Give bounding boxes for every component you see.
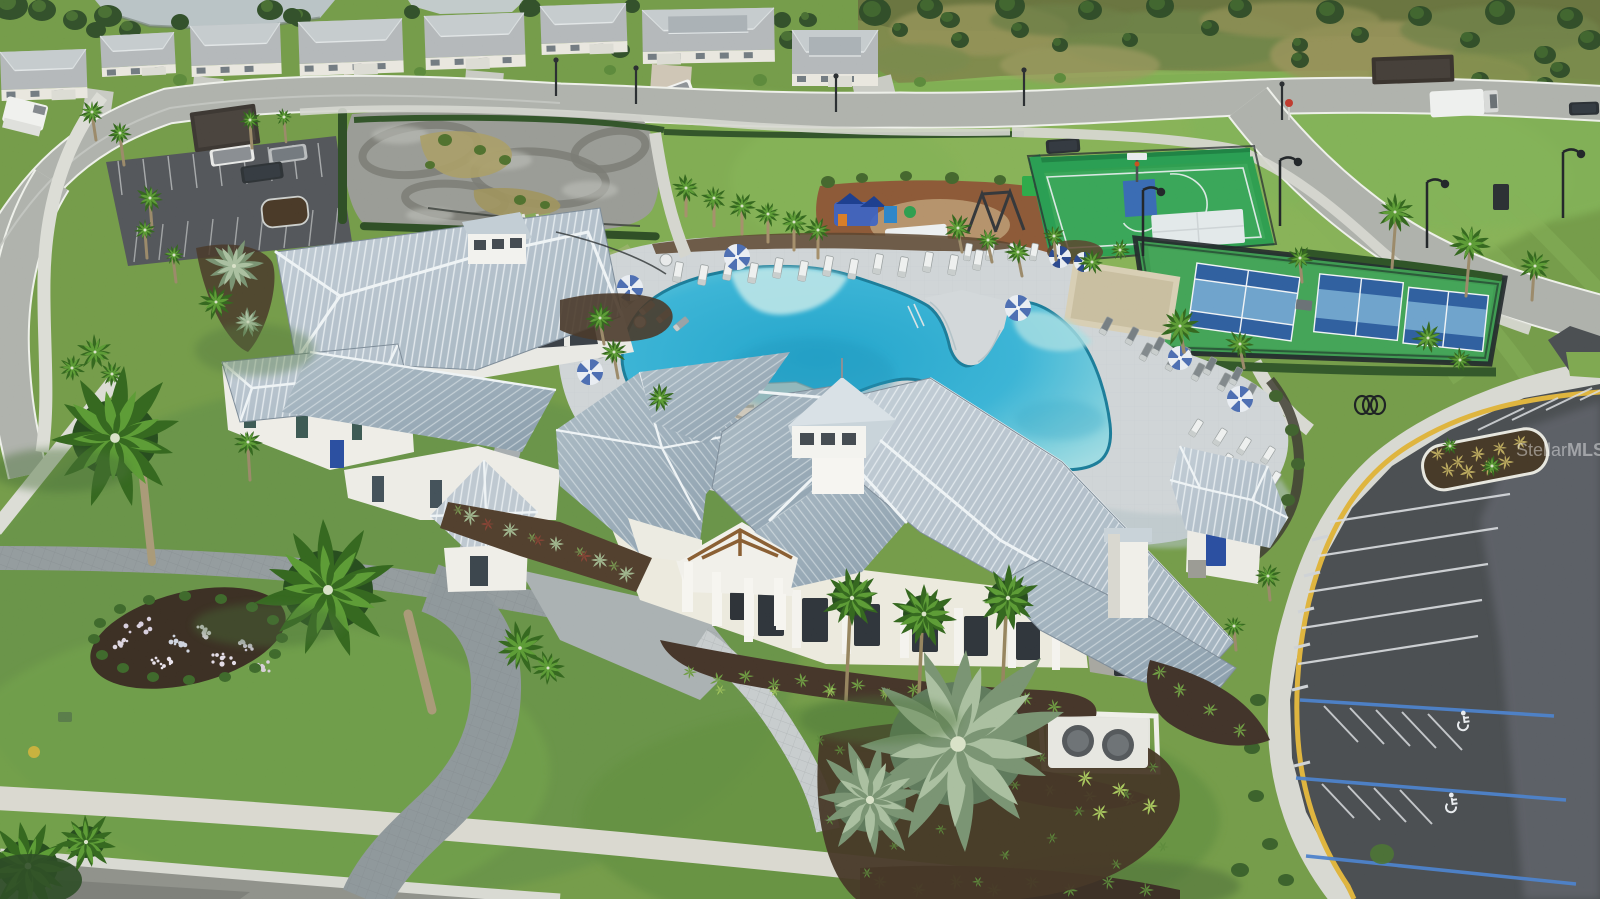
svg-text:StellarMLS: StellarMLS: [1516, 440, 1600, 460]
